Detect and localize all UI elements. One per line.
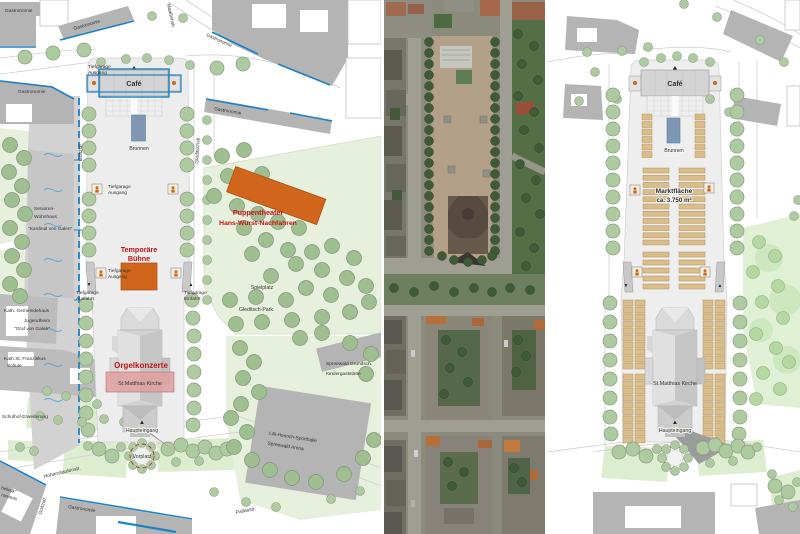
- label-orgelkonzerte: Orgelkonzerte: [114, 361, 168, 370]
- main-entrance-icon: ▲: [672, 420, 678, 426]
- aerial-green-corridor: [384, 274, 545, 305]
- label-gastronomie-1: Gastronomie: [5, 8, 33, 14]
- label-gastronomie-3: Gastronomie: [18, 89, 46, 95]
- label-kirche: St.Matthias Kirche: [653, 381, 697, 387]
- fountain: [667, 118, 680, 143]
- fountain: [132, 115, 146, 141]
- label-puppentheater-1: Puppentheater: [233, 208, 284, 217]
- aerial-photo: [384, 0, 545, 534]
- label-grundschule: Spreewald Grundsch.: [326, 361, 372, 367]
- label-tiefgarage-ausfahrt-1: Tiefgarage: [76, 290, 99, 296]
- ramp-down-icon: ▼: [624, 283, 629, 289]
- label-buehne-2: Bühne: [128, 254, 150, 263]
- label-puppentheater-2: Hans-Wurst-Nachfahren: [219, 220, 297, 227]
- label-senioren-3: "Kardinal von Galen": [28, 226, 73, 232]
- label-buehne-1: Temporäre: [121, 245, 158, 254]
- label-gleditsch-park: Gleditsch-Park: [239, 307, 273, 313]
- aerial-photo-panel: [384, 0, 545, 534]
- label-tiefgarage-mid-2: Ausgang: [108, 190, 127, 196]
- label-kindergast: Kindergaststätte: [326, 371, 361, 377]
- street-maassenstr: Maaßenstr.: [165, 3, 176, 29]
- label-cafe: Café: [667, 81, 682, 88]
- ramp-up-icon: ▲: [189, 282, 194, 288]
- label-tiefgarage-stage-2: Ausgang: [108, 274, 127, 280]
- label-tiefgarage-einfahrt-2: Einfahrt: [184, 296, 201, 302]
- label-senioren-1: Senioren-: [34, 206, 55, 212]
- site-plan-events-panel: Lilli-Henoch-Sporthalle Spreewald Arena: [0, 0, 381, 534]
- ramp-up-icon: ▲: [718, 283, 723, 289]
- aerial-east-park: [512, 20, 545, 300]
- label-brunnen: Brunnen: [664, 148, 684, 154]
- aerial-west-block: [384, 38, 406, 258]
- ramp-down-icon: ▼: [87, 282, 92, 288]
- label-tiefgarage-top-2: Ausgang: [88, 70, 107, 76]
- label-tiefgarage-ausfahrt-2: Ausfahrt: [76, 296, 95, 302]
- label-marktflaeche-2: ca. 3.750 m²: [656, 197, 691, 204]
- church-event-overlay: St.Matthias Kirche: [106, 372, 174, 392]
- street-pallasstr: Pallasstr.: [235, 506, 256, 516]
- label-tiefgarage-stage-1: Tiefgarage: [108, 268, 131, 274]
- street-gleditschstr: Gleditschstr.: [194, 136, 201, 164]
- label-spielplatz: Spielplatz: [251, 285, 274, 291]
- label-jugendheim-2: "Graf von Galen": [14, 326, 50, 332]
- main-entrance-icon: ▲: [139, 420, 145, 426]
- label-gemeindehaus: Kath. Gemeindehaus: [4, 308, 50, 314]
- label-senioren-2: Wohnhaus: [34, 214, 57, 220]
- street-goltzstr: Goltzstr.: [78, 143, 84, 161]
- label-schulhof: Schulhof-Erweiterung: [2, 414, 48, 420]
- label-jugendheim-1: Jugendheim: [24, 318, 50, 324]
- label-haupteingang: Haupteingang: [126, 428, 158, 434]
- label-schule-1: Kath.St. Franziskus: [4, 356, 46, 362]
- label-haupteingang: Haupteingang: [659, 428, 691, 434]
- temporary-stage: Temporäre Bühne: [121, 245, 158, 290]
- three-panel-site-plan: Lilli-Henoch-Sporthalle Spreewald Arena: [0, 0, 800, 534]
- events-plan-map: Lilli-Henoch-Sporthalle Spreewald Arena: [0, 0, 381, 534]
- label-tiefgarage-top-1: Tiefgarage: [88, 64, 111, 70]
- label-brunnen: Brunnen: [129, 146, 149, 152]
- label-tiefgarage-mid-1: Tiefgarage: [108, 184, 131, 190]
- label-tiefgarage-einfahrt-1: Tiefgarage: [184, 290, 207, 296]
- label-vorplatz: Vorplatz: [133, 454, 152, 460]
- label-kirche: St.Matthias Kirche: [118, 381, 162, 387]
- label-cafe: Café: [126, 81, 141, 88]
- site-plan-market-panel: Café Brunnen ▼ ▲ Marktfläche ca. 3.750 m…: [547, 0, 800, 534]
- market-plan-map: Café Brunnen ▼ ▲ Marktfläche ca. 3.750 m…: [547, 0, 800, 534]
- label-schule-2: Schule: [7, 363, 22, 369]
- label-marktflaeche-1: Marktfläche: [656, 188, 693, 195]
